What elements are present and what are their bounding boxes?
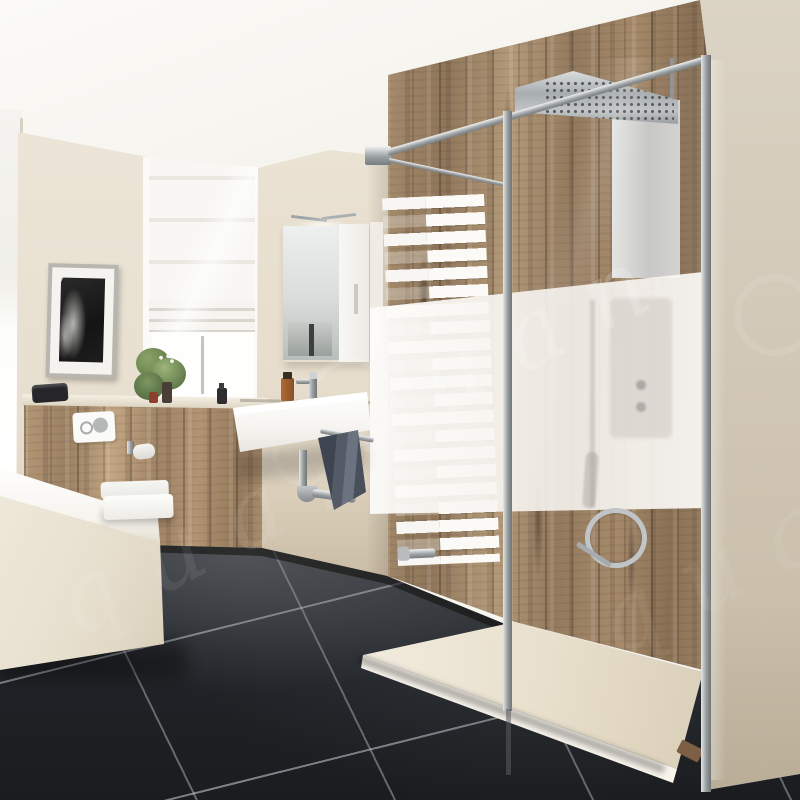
pump-bottle [217,388,227,404]
mirror-reflection-pole [309,324,314,356]
valve-knob-through-frost [636,380,646,390]
glass-mid-post-foot [506,709,511,775]
hand-shower-hose-loop [585,508,647,568]
mirror-door [283,226,339,360]
glass-mid-post [503,111,512,711]
bathroom-photo: quan quan quan [0,0,800,800]
toilet [100,476,173,520]
plant [132,346,188,404]
tap-handle [309,372,317,379]
right-wall-edge-light [710,60,726,780]
mirror-reflection-blind [288,238,332,322]
flush-plate [72,411,116,443]
pump-bottle-top [219,383,224,389]
toilet-body [103,494,174,520]
bottle-amber [281,378,294,401]
bottle-dark [162,382,172,403]
radiator-valve-knob [397,547,410,562]
toiletry-bag [31,383,68,403]
tap-spout [296,379,310,384]
flush-button-large [93,417,109,433]
picture-frame [46,263,119,379]
valve-knob2-through-frost [636,402,646,412]
glass-right-frame [701,55,711,792]
valve-plate-through-frost [610,298,672,438]
plant-flowers [156,352,176,366]
picture-art [59,277,105,362]
trap-vertical-pipe [299,450,307,490]
cabinet-handle [354,284,358,314]
jar-red [149,392,158,403]
flush-button-small [80,421,94,435]
bottle-amber-cap [283,372,292,379]
